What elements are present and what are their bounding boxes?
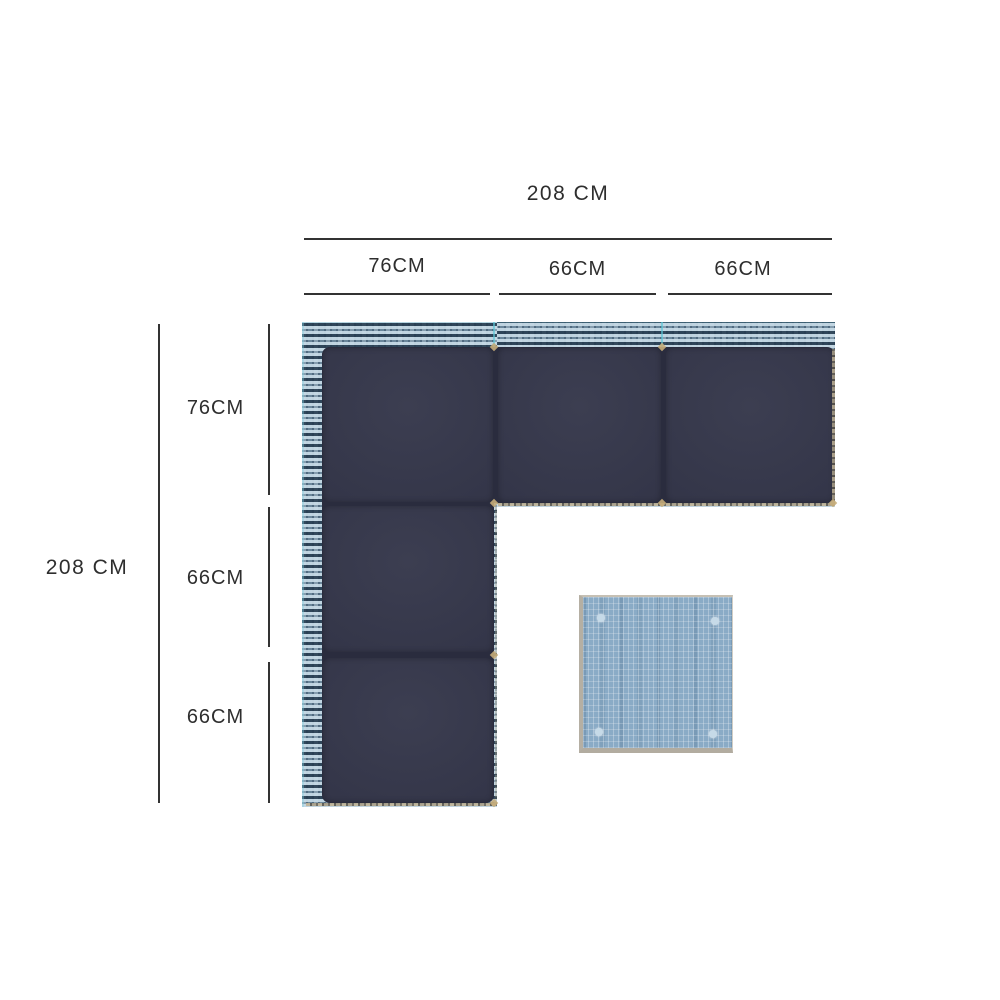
top-segment-2-line [499, 293, 656, 295]
overall-height-label: 208 CM [32, 556, 142, 580]
overall-width-line [304, 238, 832, 240]
top-segment-3-label: 66CM [660, 258, 826, 281]
cushion-left-middle [323, 506, 493, 652]
left-segment-3-label: 66CM [163, 706, 268, 729]
table-corner-fixing [595, 728, 603, 736]
cushion-top-middle [498, 348, 661, 502]
dimension-diagram-canvas: 208 CM 76CM 66CM 66CM 208 CM 76CM 66CM 6… [0, 0, 1000, 1000]
left-segment-1-line [268, 324, 270, 495]
top-segment-1-label: 76CM [304, 255, 490, 278]
corner-sofa-top-view [302, 322, 835, 807]
table-corner-fixing [597, 614, 605, 622]
left-segment-2-line [268, 507, 270, 647]
base-edge-bottom-of-top-arm [498, 503, 835, 506]
table-corner-fixing [711, 617, 719, 625]
overall-width-label: 208 CM [304, 182, 832, 206]
left-segment-3-line [268, 662, 270, 803]
top-segment-1-line [304, 293, 490, 295]
cushion-top-right [666, 348, 834, 502]
side-table-top-view [579, 595, 733, 753]
overall-height-line [158, 324, 160, 803]
cushion-corner [323, 348, 493, 502]
cushion-left-bottom [323, 658, 493, 802]
base-edge-right-of-top-arm [832, 349, 835, 505]
table-corner-fixing [709, 730, 717, 738]
left-segment-2-label: 66CM [163, 567, 268, 590]
base-edge-bottom-of-left-arm [306, 803, 497, 806]
top-segment-2-label: 66CM [499, 258, 656, 281]
left-segment-1-label: 76CM [163, 397, 268, 420]
top-segment-3-line [668, 293, 832, 295]
